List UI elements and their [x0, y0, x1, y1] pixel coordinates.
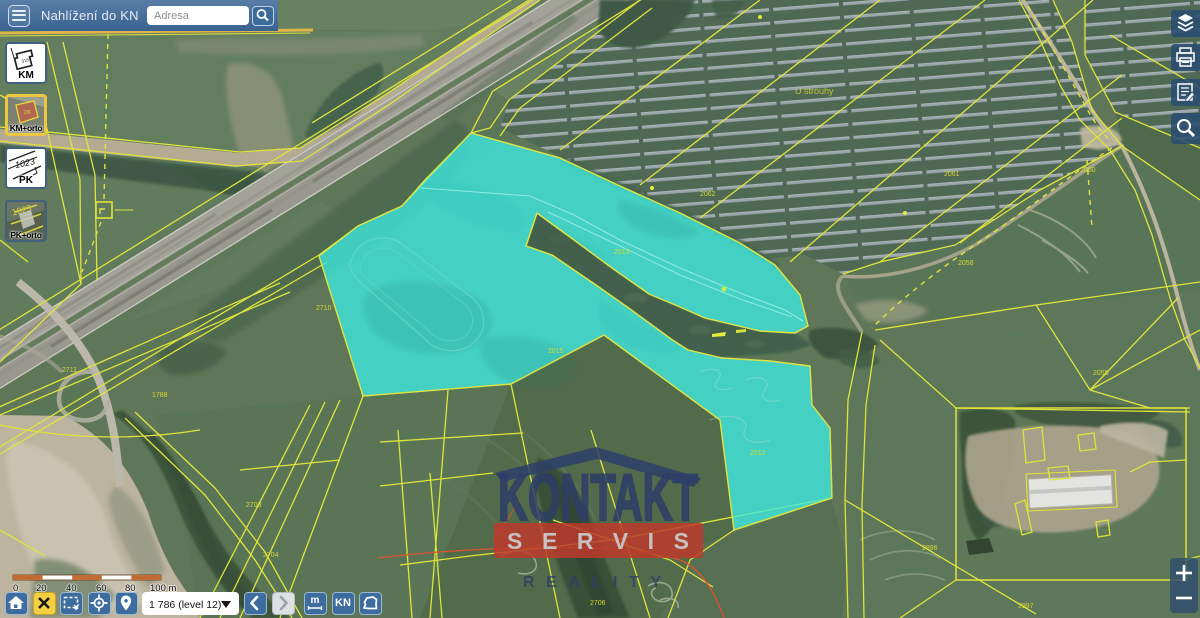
- svg-text:2704: 2704: [263, 552, 279, 559]
- svg-text:2013: 2013: [614, 249, 630, 256]
- svg-text:318: 318: [21, 57, 30, 64]
- svg-text:REALITY: REALITY: [523, 574, 673, 591]
- svg-text:2710: 2710: [316, 305, 332, 312]
- svg-text:2/6: 2/6: [24, 110, 31, 116]
- svg-text:2062: 2062: [700, 191, 716, 198]
- svg-text:2058: 2058: [958, 260, 974, 267]
- svg-text:2711: 2711: [62, 367, 77, 374]
- svg-text:m: m: [311, 595, 320, 606]
- svg-text:1788: 1788: [152, 392, 168, 399]
- svg-text:2996: 2996: [922, 545, 938, 552]
- svg-text:2012: 2012: [750, 450, 766, 457]
- svg-text:2706: 2706: [590, 600, 606, 607]
- svg-text:2997: 2997: [1018, 603, 1034, 610]
- svg-text:2703: 2703: [246, 502, 262, 509]
- svg-text:U strouhy: U strouhy: [795, 86, 834, 96]
- svg-text:2015: 2015: [548, 348, 564, 355]
- svg-text:2055: 2055: [1093, 370, 1109, 377]
- svg-text:2060: 2060: [1080, 167, 1096, 174]
- svg-text:KONTAKT: KONTAKT: [498, 460, 698, 534]
- svg-text:2061: 2061: [944, 171, 960, 178]
